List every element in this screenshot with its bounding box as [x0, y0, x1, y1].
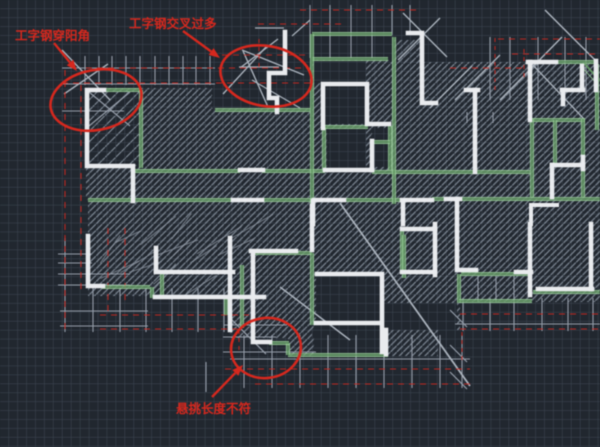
svg-text:工字钢交叉过多: 工字钢交叉过多	[129, 16, 217, 31]
svg-text:工字钢穿阳角: 工字钢穿阳角	[15, 28, 90, 43]
svg-text:悬挑长度不符: 悬挑长度不符	[175, 401, 252, 416]
